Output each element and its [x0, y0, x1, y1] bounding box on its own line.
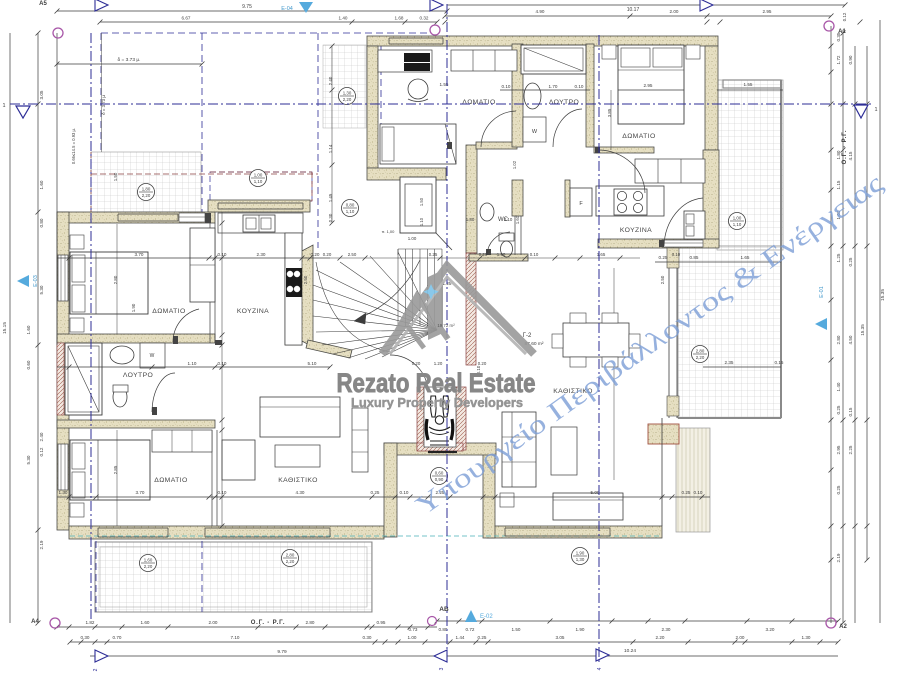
svg-text:1,00: 1,00	[733, 215, 742, 220]
svg-text:1.30: 1.30	[59, 490, 68, 495]
svg-text:0.25: 0.25	[848, 257, 853, 266]
svg-text:2.50: 2.50	[303, 275, 308, 284]
svg-text:E-04: E-04	[281, 6, 293, 12]
svg-text:1.25: 1.25	[836, 253, 841, 262]
svg-text:0.30: 0.30	[328, 213, 333, 222]
svg-text:0.20: 0.20	[311, 252, 320, 257]
svg-text:1.50: 1.50	[512, 627, 521, 632]
svg-text:0.20: 0.20	[478, 361, 487, 366]
svg-text:1.68: 1.68	[395, 16, 404, 21]
svg-text:E-03: E-03	[33, 275, 39, 287]
svg-text:3.05: 3.05	[39, 90, 44, 99]
svg-text:δ = 3.73 μ.: δ = 3.73 μ.	[118, 57, 141, 63]
svg-text:2.50: 2.50	[660, 275, 665, 284]
svg-text:0.25: 0.25	[836, 485, 841, 494]
svg-text:2.95: 2.95	[644, 83, 653, 88]
svg-text:1,80: 1,80	[142, 186, 151, 191]
svg-text:2.00: 2.00	[736, 635, 745, 640]
svg-text:1.20: 1.20	[434, 361, 443, 366]
svg-text:1.90: 1.90	[131, 303, 136, 312]
svg-text:1.80: 1.80	[466, 217, 475, 222]
svg-text:1.50: 1.50	[419, 197, 424, 206]
svg-text:2,20: 2,20	[343, 97, 352, 102]
svg-text:2,20: 2,20	[144, 564, 153, 569]
svg-text:2.19: 2.19	[836, 553, 841, 562]
svg-text:0.25: 0.25	[836, 405, 841, 414]
svg-text:3.70: 3.70	[135, 252, 144, 257]
svg-text:3: 3	[439, 667, 445, 670]
svg-text:2,20: 2,20	[696, 355, 705, 360]
svg-text:ΛΟΥΤΡΟ: ΛΟΥΤΡΟ	[549, 99, 579, 106]
svg-text:4.30: 4.30	[296, 490, 305, 495]
svg-text:1.50: 1.50	[113, 172, 118, 181]
svg-text:0.95: 0.95	[377, 620, 386, 625]
svg-text:2.35: 2.35	[725, 360, 734, 365]
svg-text:ΔΩΜΑΤΙΟ: ΔΩΜΑΤΙΟ	[622, 133, 655, 140]
svg-text:1.60: 1.60	[39, 180, 44, 189]
svg-text:1.80: 1.80	[836, 150, 841, 159]
svg-text:5.30: 5.30	[39, 285, 44, 294]
svg-text:0.10: 0.10	[218, 361, 227, 366]
svg-text:E-01: E-01	[819, 286, 825, 298]
svg-text:3.85: 3.85	[607, 108, 612, 117]
svg-text:1.55: 1.55	[440, 82, 449, 87]
svg-text:2.85: 2.85	[113, 465, 118, 474]
svg-text:3.70: 3.70	[136, 490, 145, 495]
svg-text:2.50: 2.50	[348, 252, 357, 257]
svg-text:0.10: 0.10	[502, 84, 511, 89]
svg-text:ΚΟΥΖΙΝΑ: ΚΟΥΖΙΝΑ	[237, 308, 269, 315]
svg-text:0.10: 0.10	[530, 252, 539, 257]
svg-text:0.10: 0.10	[694, 490, 703, 495]
svg-text:ΔΩΜΑΤΙΟ: ΔΩΜΑΤΙΟ	[152, 308, 185, 315]
svg-text:1,90: 1,90	[576, 550, 585, 555]
svg-text:Luxury Property Developers: Luxury Property Developers	[351, 395, 523, 410]
svg-text:1,30: 1,30	[343, 90, 352, 95]
svg-text:δ = 3.73 μ: δ = 3.73 μ	[101, 95, 106, 115]
svg-text:1: 1	[2, 103, 5, 109]
svg-text:1.00: 1.00	[408, 236, 417, 241]
svg-text:0.25: 0.25	[371, 490, 380, 495]
svg-text:15.15: 15.15	[2, 322, 8, 334]
svg-text:0.25: 0.25	[429, 252, 438, 257]
svg-text:ΚΑΘΙΣΤΙΚΟ: ΚΑΘΙΣΤΙΚΟ	[278, 477, 318, 484]
svg-text:1.10: 1.10	[419, 217, 424, 226]
svg-text:ΔΩΜΑΤΙΟ: ΔΩΜΑΤΙΟ	[462, 99, 495, 106]
svg-text:15.35: 15.35	[860, 324, 865, 336]
svg-text:0.10: 0.10	[672, 252, 681, 257]
svg-text:0.10: 0.10	[575, 84, 584, 89]
svg-text:1.60: 1.60	[141, 620, 150, 625]
svg-text:1.65: 1.65	[597, 252, 606, 257]
svg-text:6.67: 6.67	[182, 16, 191, 21]
svg-text:1.45: 1.45	[328, 193, 333, 202]
svg-text:W: W	[532, 129, 538, 135]
svg-text:2.00: 2.00	[670, 9, 679, 14]
svg-text:0.12: 0.12	[842, 12, 847, 21]
svg-text:19,72 m²: 19,72 m²	[437, 323, 455, 328]
svg-text:2.00: 2.00	[209, 620, 218, 625]
svg-text:0.30: 0.30	[363, 635, 372, 640]
svg-text:0.25: 0.25	[659, 255, 668, 260]
svg-text:Rezato Real Estate: Rezato Real Estate	[337, 368, 536, 398]
svg-text:1.55: 1.55	[744, 82, 753, 87]
svg-text:0.10: 0.10	[218, 490, 227, 495]
svg-text:0.25: 0.25	[478, 635, 487, 640]
svg-text:ΔΩΜΑΤΙΟ: ΔΩΜΑΤΙΟ	[154, 477, 187, 484]
svg-text:0.10: 0.10	[400, 490, 409, 495]
svg-text:0,80: 0,80	[346, 202, 355, 207]
svg-text:2,20: 2,20	[142, 193, 151, 198]
svg-text:1.60: 1.60	[515, 215, 520, 224]
svg-text:1: 1	[874, 107, 877, 113]
svg-text:Υπουργείο Περιβάλλοντος & Ενέρ: Υπουργείο Περιβάλλοντος & Ενέργειας	[410, 168, 889, 521]
svg-text:2,80: 2,80	[286, 552, 295, 557]
svg-text:2.40: 2.40	[328, 76, 333, 85]
svg-text:2.80: 2.80	[836, 335, 841, 344]
svg-text:0.12: 0.12	[39, 447, 44, 456]
svg-text:A4: A4	[31, 619, 39, 625]
svg-text:E-02: E-02	[480, 614, 493, 620]
svg-text:2.80: 2.80	[113, 275, 118, 284]
svg-text:Γ-2: Γ-2	[523, 333, 532, 339]
svg-text:0.15: 0.15	[775, 360, 784, 365]
svg-text:1.90: 1.90	[497, 252, 506, 257]
svg-text:15.35: 15.35	[880, 289, 886, 301]
svg-text:9.79: 9.79	[277, 649, 287, 655]
svg-text:2,20: 2,20	[286, 559, 295, 564]
svg-text:1,00: 1,00	[254, 172, 263, 177]
svg-text:10.17: 10.17	[627, 7, 640, 13]
svg-text:9.75: 9.75	[242, 4, 252, 10]
svg-text:2.40: 2.40	[39, 432, 44, 441]
svg-text:1.14: 1.14	[328, 144, 333, 153]
svg-text:2.95: 2.95	[763, 9, 772, 14]
svg-text:5.30: 5.30	[26, 455, 31, 464]
svg-text:1.72: 1.72	[836, 55, 841, 64]
svg-text:1.02: 1.02	[512, 160, 517, 169]
svg-text:3.20: 3.20	[766, 627, 775, 632]
svg-text:0.73: 0.73	[409, 627, 418, 632]
svg-text:0.25: 0.25	[682, 490, 691, 495]
svg-text:1.70: 1.70	[549, 84, 558, 89]
svg-text:1.10: 1.10	[188, 361, 197, 366]
svg-text:1,10: 1,10	[254, 179, 263, 184]
svg-text:A2: A2	[839, 624, 847, 630]
svg-text:1,60: 1,60	[144, 557, 153, 562]
svg-text:2: 2	[93, 668, 99, 671]
svg-text:4.50: 4.50	[848, 335, 853, 344]
svg-text:0.10: 0.10	[218, 252, 227, 257]
svg-text:1,30: 1,30	[576, 557, 585, 562]
svg-text:4.90: 4.90	[536, 9, 545, 14]
svg-text:0.20: 0.20	[323, 252, 332, 257]
svg-text:0.32: 0.32	[420, 16, 429, 21]
svg-text:4.15: 4.15	[848, 151, 853, 160]
svg-text:2.19: 2.19	[39, 540, 44, 549]
svg-text:2.80: 2.80	[306, 620, 315, 625]
svg-text:0.15: 0.15	[848, 407, 853, 416]
svg-text:4: 4	[597, 667, 603, 670]
svg-text:π. 1,00: π. 1,00	[382, 229, 396, 234]
svg-text:2,80: 2,80	[696, 348, 705, 353]
svg-text:A1: A1	[838, 29, 846, 35]
svg-text:2.20: 2.20	[656, 635, 665, 640]
svg-text:W: W	[150, 353, 155, 359]
svg-text:7.10: 7.10	[231, 635, 240, 640]
svg-text:0.60: 0.60	[26, 360, 31, 369]
svg-text:0.66≤14.5 = 0.93 μ.: 0.66≤14.5 = 0.93 μ.	[71, 128, 76, 164]
svg-text:ΚΟΥΖΙΝΑ: ΚΟΥΖΙΝΑ	[620, 227, 652, 234]
svg-text:Ο.Γ. - Ρ.Γ.: Ο.Γ. - Ρ.Γ.	[842, 130, 848, 165]
svg-text:ΛΟΥΤΡΟ: ΛΟΥΤΡΟ	[123, 372, 153, 379]
svg-text:0.30: 0.30	[81, 635, 90, 640]
svg-text:1.90: 1.90	[576, 627, 585, 632]
svg-text:2.30: 2.30	[257, 252, 266, 257]
svg-text:1,10: 1,10	[733, 222, 742, 227]
svg-text:1.40: 1.40	[339, 16, 348, 21]
svg-text:2.30: 2.30	[662, 627, 671, 632]
svg-text:0.20: 0.20	[412, 361, 421, 366]
svg-text:0.90: 0.90	[848, 55, 853, 64]
svg-text:AB: AB	[439, 606, 449, 613]
svg-text:1.60: 1.60	[26, 325, 31, 334]
svg-text:5.10: 5.10	[308, 361, 317, 366]
svg-text:Ο.Γ. - Ρ.Γ.: Ο.Γ. - Ρ.Γ.	[251, 620, 286, 626]
svg-text:1.40: 1.40	[836, 382, 841, 391]
svg-text:1.00: 1.00	[408, 635, 417, 640]
svg-text:0.72: 0.72	[466, 627, 475, 632]
svg-text:0.85: 0.85	[690, 255, 699, 260]
svg-text:A5: A5	[39, 1, 47, 7]
svg-text:1,10: 1,10	[346, 209, 355, 214]
svg-text:1.30: 1.30	[802, 635, 811, 640]
svg-text:1.82: 1.82	[86, 620, 95, 625]
svg-text:3.05: 3.05	[556, 635, 565, 640]
svg-text:0.80: 0.80	[39, 218, 44, 227]
svg-text:2.25: 2.25	[848, 445, 853, 454]
svg-text:1.15: 1.15	[836, 180, 841, 189]
svg-text:0.20: 0.20	[479, 252, 488, 257]
svg-text:10.24: 10.24	[624, 648, 636, 654]
svg-text:1.44: 1.44	[456, 635, 465, 640]
svg-text:0.10: 0.10	[504, 217, 513, 222]
svg-text:2.95: 2.95	[836, 445, 841, 454]
svg-text:0.70: 0.70	[113, 635, 122, 640]
